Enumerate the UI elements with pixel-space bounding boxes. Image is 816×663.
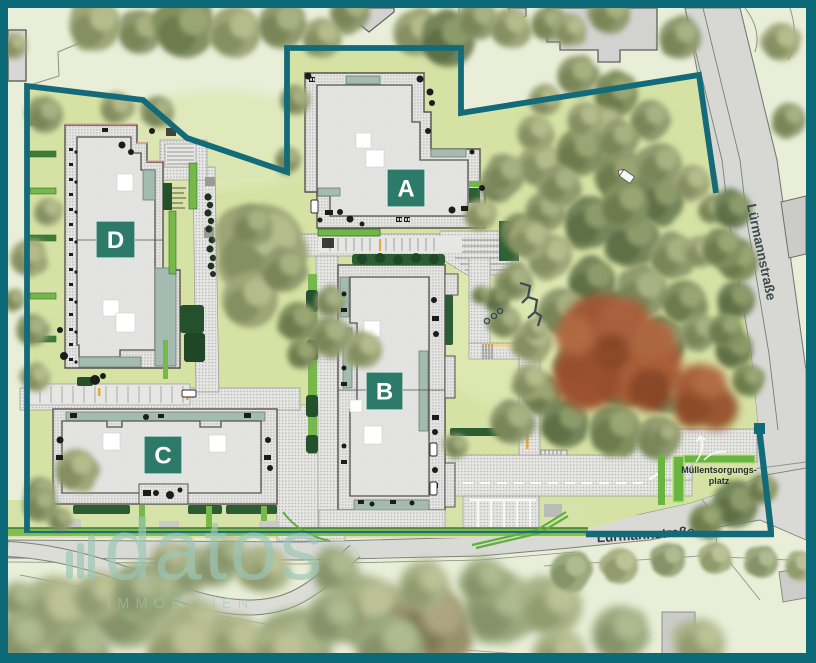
- svg-text:A: A: [397, 176, 414, 203]
- svg-text:platz: platz: [709, 476, 730, 486]
- svg-text:B: B: [376, 379, 393, 406]
- svg-text:IMMOBILIEN: IMMOBILIEN: [107, 596, 254, 612]
- svg-text:datos: datos: [104, 502, 324, 598]
- svg-text:Müllentsorgungs-: Müllentsorgungs-: [681, 465, 757, 475]
- svg-text:C: C: [154, 443, 171, 470]
- svg-text:D: D: [107, 227, 124, 254]
